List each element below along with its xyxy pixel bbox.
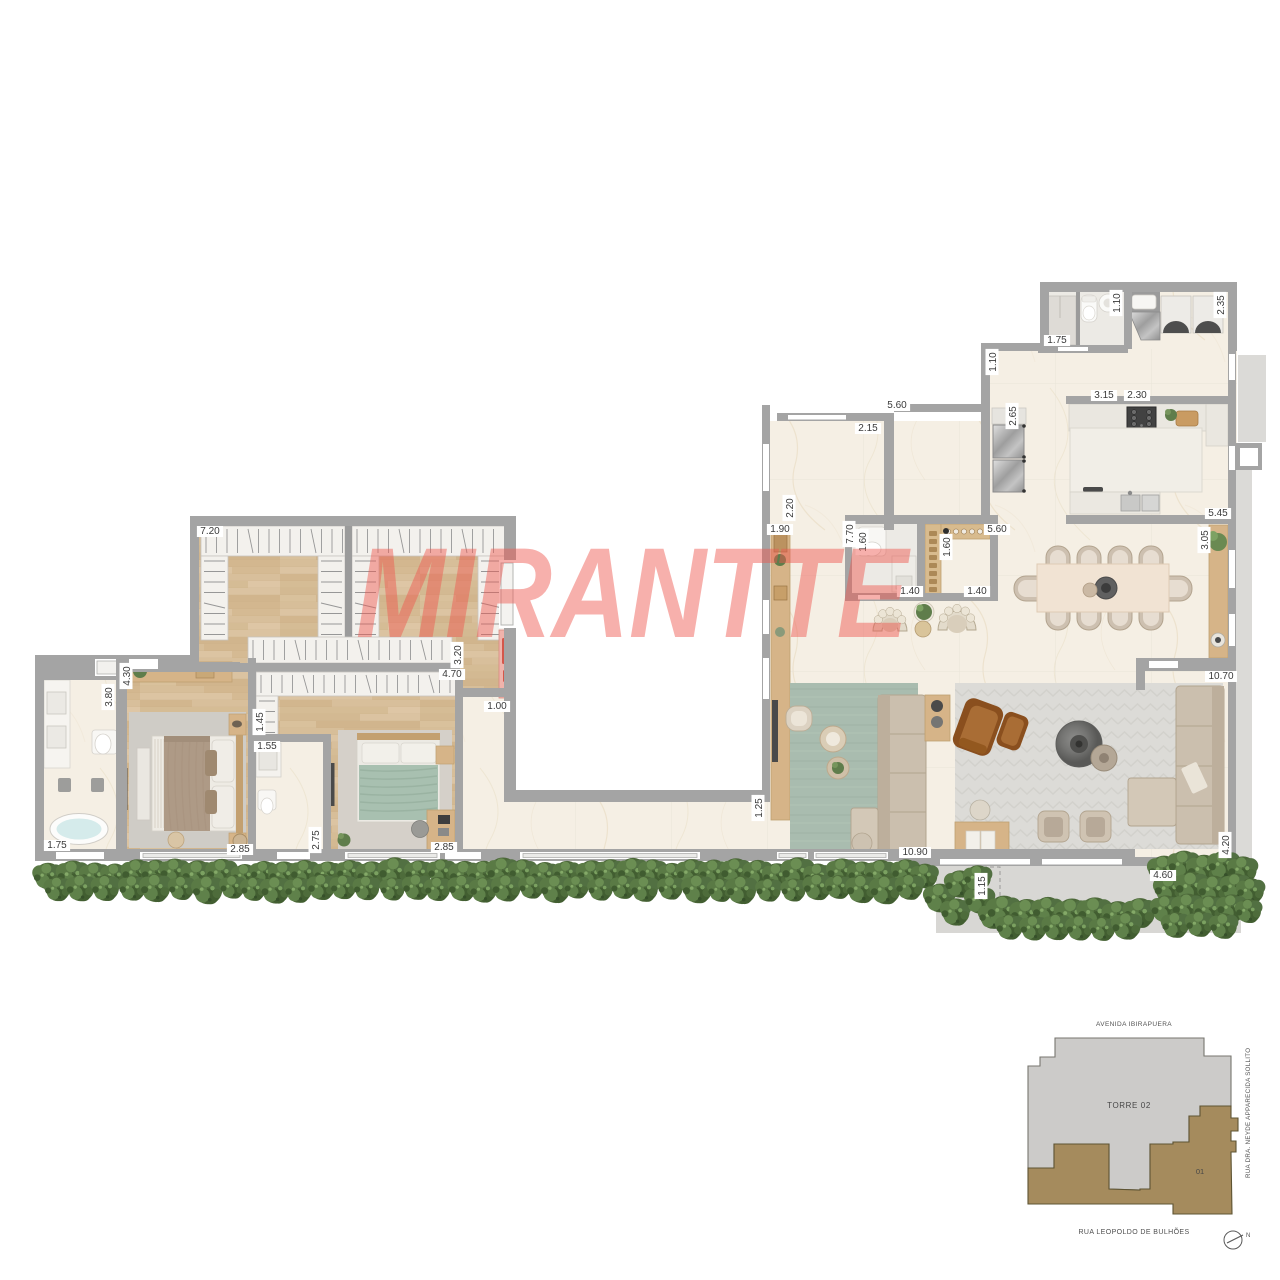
svg-text:2.15: 2.15 <box>858 423 878 434</box>
svg-text:RUA LEOPOLDO DE BULHÕES: RUA LEOPOLDO DE BULHÕES <box>1078 1227 1189 1236</box>
svg-text:2.85: 2.85 <box>434 842 454 853</box>
svg-text:RUA DRA. NEYDE APPARECIDA SOLL: RUA DRA. NEYDE APPARECIDA SOLLITO <box>1245 1048 1252 1178</box>
svg-text:3.05: 3.05 <box>1200 530 1211 550</box>
svg-text:3.15: 3.15 <box>1094 390 1114 401</box>
svg-text:N: N <box>1246 1233 1250 1239</box>
svg-text:1.75: 1.75 <box>1047 335 1067 346</box>
svg-text:1.45: 1.45 <box>255 712 266 732</box>
svg-text:1.10: 1.10 <box>1112 293 1123 313</box>
svg-text:2.30: 2.30 <box>1127 390 1147 401</box>
svg-text:1.75: 1.75 <box>47 840 67 851</box>
svg-text:10.90: 10.90 <box>902 847 927 858</box>
svg-text:1.55: 1.55 <box>257 741 277 752</box>
svg-text:5.60: 5.60 <box>987 524 1007 535</box>
svg-text:1.40: 1.40 <box>967 586 987 597</box>
svg-text:1.00: 1.00 <box>487 701 507 712</box>
svg-text:1.25: 1.25 <box>754 798 765 818</box>
svg-text:2.65: 2.65 <box>1008 406 1019 426</box>
svg-text:5.60: 5.60 <box>887 400 907 411</box>
svg-text:7.20: 7.20 <box>200 526 220 537</box>
svg-text:2.35: 2.35 <box>1216 295 1227 315</box>
svg-text:3.80: 3.80 <box>104 687 115 707</box>
svg-text:1.60: 1.60 <box>942 537 953 557</box>
svg-text:4.30: 4.30 <box>122 666 133 686</box>
svg-text:5.45: 5.45 <box>1208 508 1228 519</box>
svg-text:AVENIDA IBIRAPUERA: AVENIDA IBIRAPUERA <box>1096 1021 1172 1028</box>
svg-text:2.85: 2.85 <box>230 844 250 855</box>
svg-text:TORRE 02: TORRE 02 <box>1107 1101 1151 1110</box>
svg-text:1.10: 1.10 <box>988 352 999 372</box>
svg-text:4.20: 4.20 <box>1221 835 1232 855</box>
svg-text:10.70: 10.70 <box>1208 671 1233 682</box>
svg-text:1.15: 1.15 <box>977 876 988 896</box>
svg-text:MIRANTTE: MIRANTTE <box>356 522 911 665</box>
svg-text:2.75: 2.75 <box>311 830 322 850</box>
svg-text:4.60: 4.60 <box>1153 870 1173 881</box>
svg-text:2.20: 2.20 <box>785 498 796 518</box>
svg-text:01: 01 <box>1196 1167 1204 1176</box>
svg-text:4.70: 4.70 <box>442 669 462 680</box>
